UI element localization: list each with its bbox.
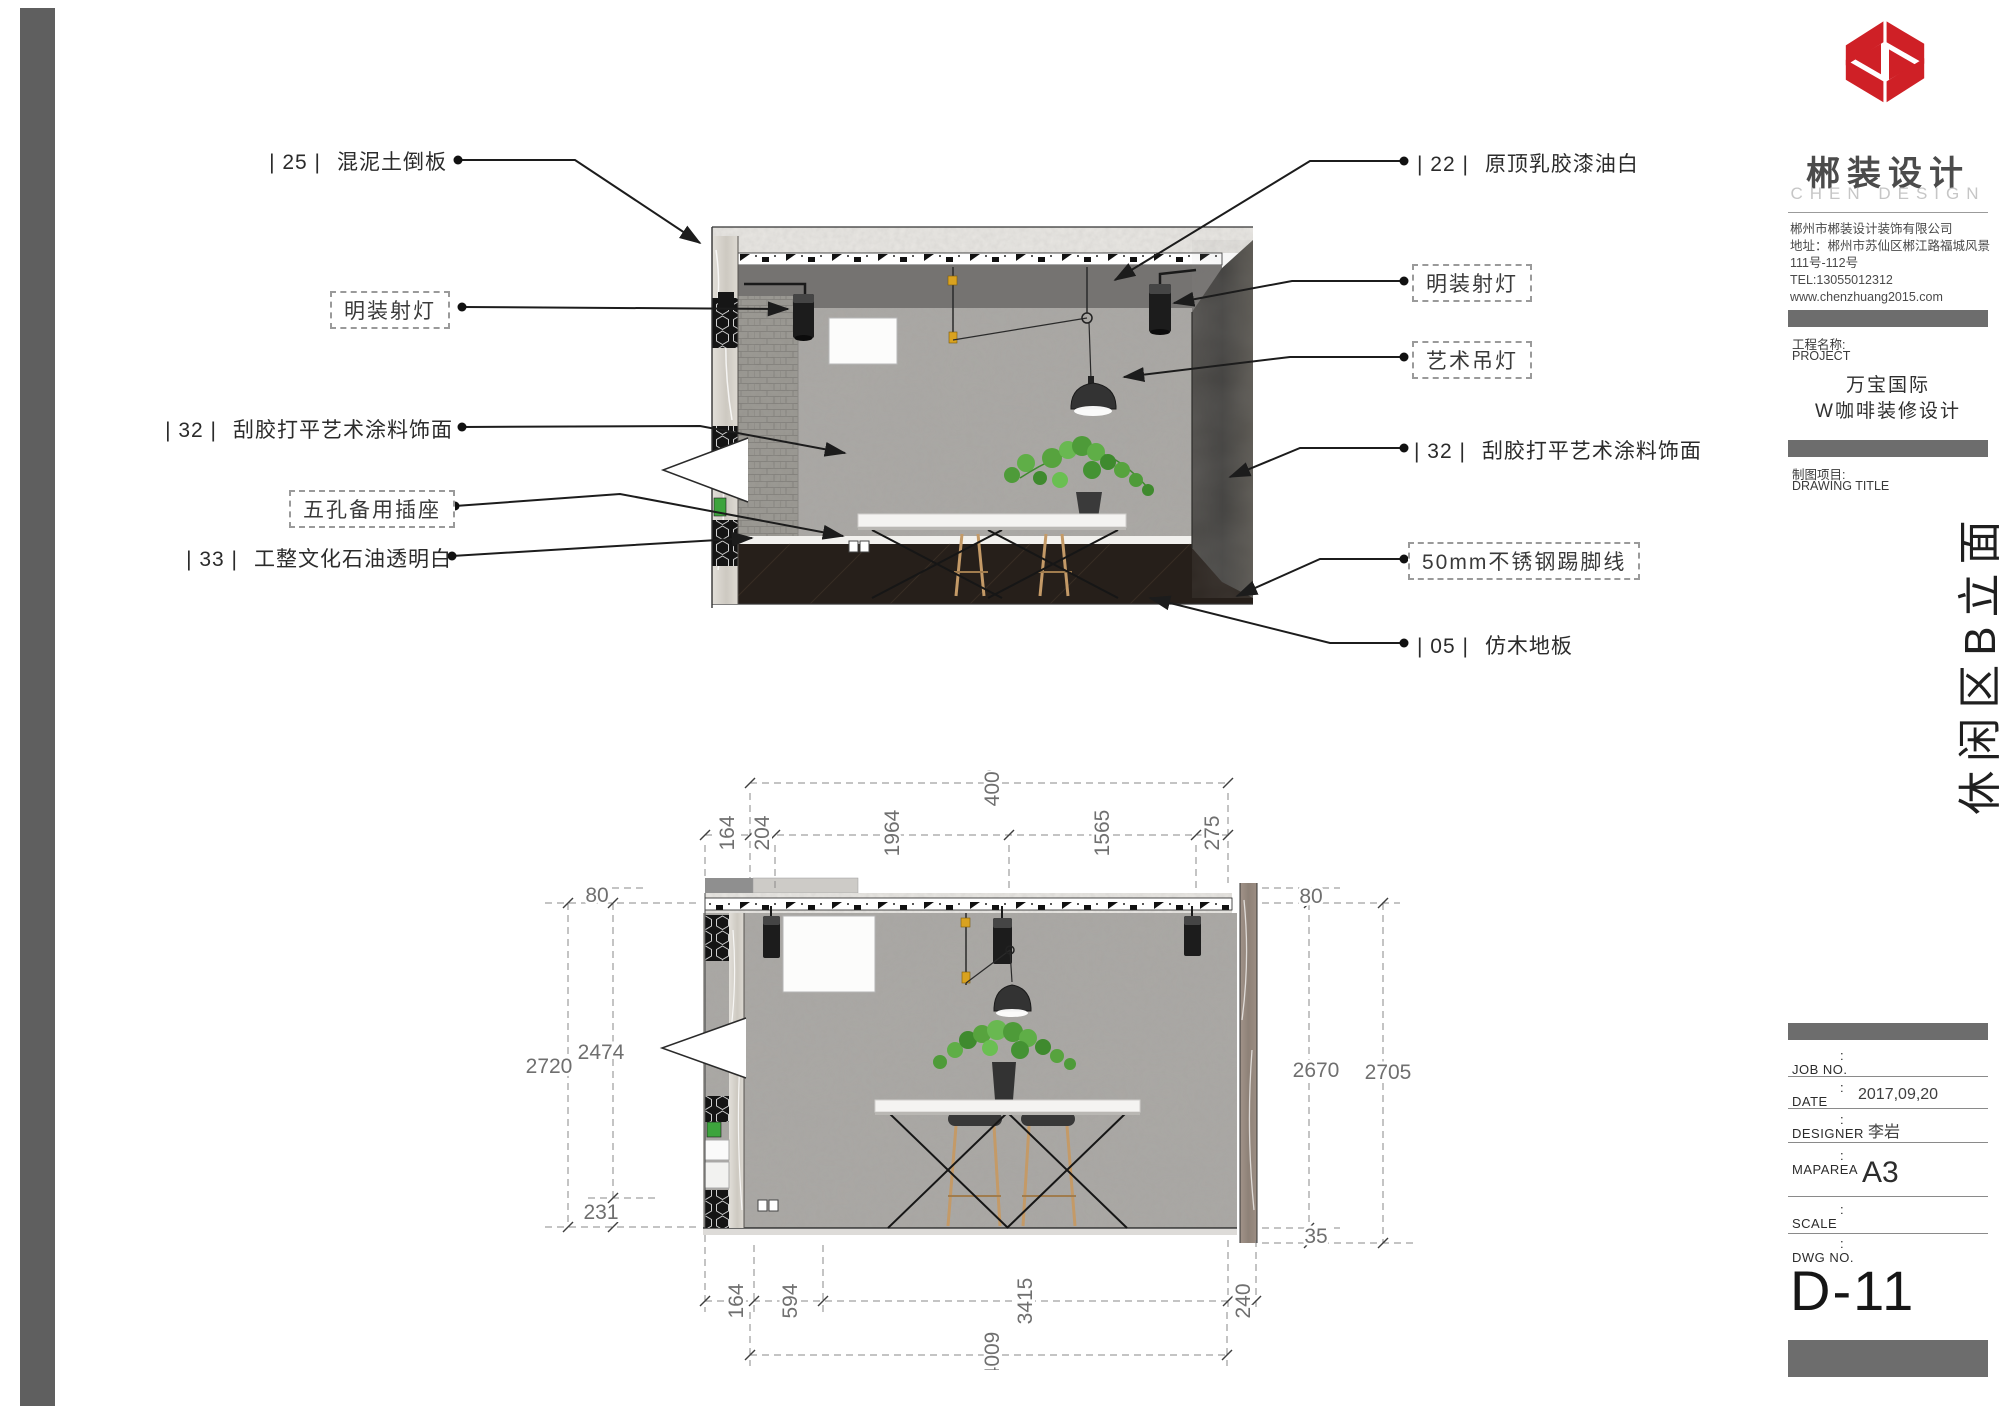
project-label-en: PROJECT: [1792, 349, 1850, 363]
project-name-line1: 万宝国际: [1788, 370, 1988, 397]
svg-text:1565: 1565: [1091, 810, 1114, 857]
svg-text:2705: 2705: [1365, 1061, 1412, 1084]
svg-text:231: 231: [583, 1201, 618, 1224]
upper-elevation-drawing: [440, 130, 1420, 670]
svg-text:80: 80: [1299, 885, 1322, 908]
svg-text:80: 80: [585, 884, 608, 907]
svg-text:275: 275: [1201, 815, 1224, 850]
lower-white-board: [783, 916, 875, 992]
drawing-number: D-11: [1790, 1258, 1990, 1323]
callout-surface-spotlight-right: 明装射灯: [1412, 264, 1532, 302]
svg-text:594: 594: [779, 1283, 802, 1318]
upper-left-finish-strip: [712, 227, 738, 608]
svg-text:4009: 4009: [981, 1332, 1004, 1370]
bottom-bar: [1788, 1340, 1988, 1377]
drawing-title-label-en: DRAWING TITLE: [1792, 479, 1889, 493]
project-section-bar: [1788, 310, 1988, 327]
company-info: 郴州市郴装设计装饰有限公司 地址：郴州市苏仙区郴江路福城风景 111号-112号…: [1790, 221, 1995, 306]
svg-text:2720: 2720: [526, 1055, 573, 1078]
callout-art-coating-left: | 32 |刮胶打平艺术涂料饰面: [165, 414, 453, 444]
callout-spare-socket: 五孔备用插座: [289, 490, 455, 528]
svg-text:2670: 2670: [1293, 1059, 1340, 1082]
callout-art-pendant: 艺术吊灯: [1412, 341, 1532, 379]
svg-text:2474: 2474: [578, 1041, 625, 1064]
project-name-line2: W咖啡装修设计: [1788, 396, 1988, 423]
maparea-row: :MAPAREA: [1792, 1150, 1858, 1177]
lower-elevation-drawing: 4009 164 204 1964 1565 275 80 2720 2474 …: [520, 770, 1420, 1370]
svg-text:240: 240: [1232, 1283, 1255, 1318]
upper-break-symbol: [663, 438, 748, 502]
callout-skirting: 50mm不锈钢踢脚线: [1408, 542, 1640, 580]
callout-text: 混泥土倒板: [337, 151, 447, 174]
callout-ceiling-paint: | 22 |原顶乳胶漆油白: [1417, 148, 1639, 178]
job-no-row: :JOB NO.: [1792, 1050, 1848, 1077]
callout-concrete-slab: | 25 |混泥土倒板: [269, 146, 447, 176]
upper-concrete-wall: [738, 308, 1192, 538]
svg-text:164: 164: [725, 1283, 748, 1318]
drawing-title-section-bar: [1788, 440, 1988, 457]
job-table-top-bar: [1788, 1023, 1988, 1040]
svg-text:1964: 1964: [881, 809, 904, 856]
drawing-title-vertical: 休闲区B立面: [1944, 504, 2000, 822]
callout-culture-stone: | 33 |工整文化石油透明白: [186, 543, 452, 573]
drawing-sheet: | 25 |混泥土倒板 明装射灯 | 32 |刮胶打平艺术涂料饰面 五孔备用插座…: [0, 0, 2000, 1414]
lower-ceiling-slab: [705, 893, 1232, 913]
svg-text:164: 164: [716, 815, 739, 850]
upper-white-board: [829, 318, 897, 364]
upper-baseboard: [738, 536, 1192, 544]
company-logo-icon: [1833, 18, 1945, 116]
scale-row: :SCALE: [1792, 1204, 1844, 1231]
date-row: :DATE: [1792, 1082, 1844, 1109]
maparea-value: A3: [1862, 1156, 1899, 1190]
sheet-left-bar: [20, 8, 55, 1406]
svg-text:35: 35: [1304, 1225, 1327, 1248]
svg-text:4009: 4009: [981, 770, 1004, 806]
callout-surface-spotlight-left: 明装射灯: [330, 291, 450, 329]
svg-text:3415: 3415: [1014, 1278, 1037, 1325]
brand-subtitle: CHEN DESIGN: [1788, 184, 1988, 204]
designer-row: :DESIGNER: [1792, 1114, 1864, 1141]
company-website: www.chenzhuang2015.com: [1790, 289, 1995, 306]
designer-value: 李岩: [1868, 1118, 1900, 1142]
svg-text:204: 204: [751, 815, 774, 850]
date-value: 2017,09,20: [1858, 1086, 1938, 1104]
callout-code: | 25 |: [269, 151, 321, 174]
titleblock-divider: [1788, 212, 1988, 213]
lower-right-marble: [1240, 883, 1257, 1243]
callout-wood-floor: | 05 |仿木地板: [1417, 630, 1573, 660]
callout-art-coating-right: | 32 |刮胶打平艺术涂料饰面: [1414, 435, 1702, 465]
